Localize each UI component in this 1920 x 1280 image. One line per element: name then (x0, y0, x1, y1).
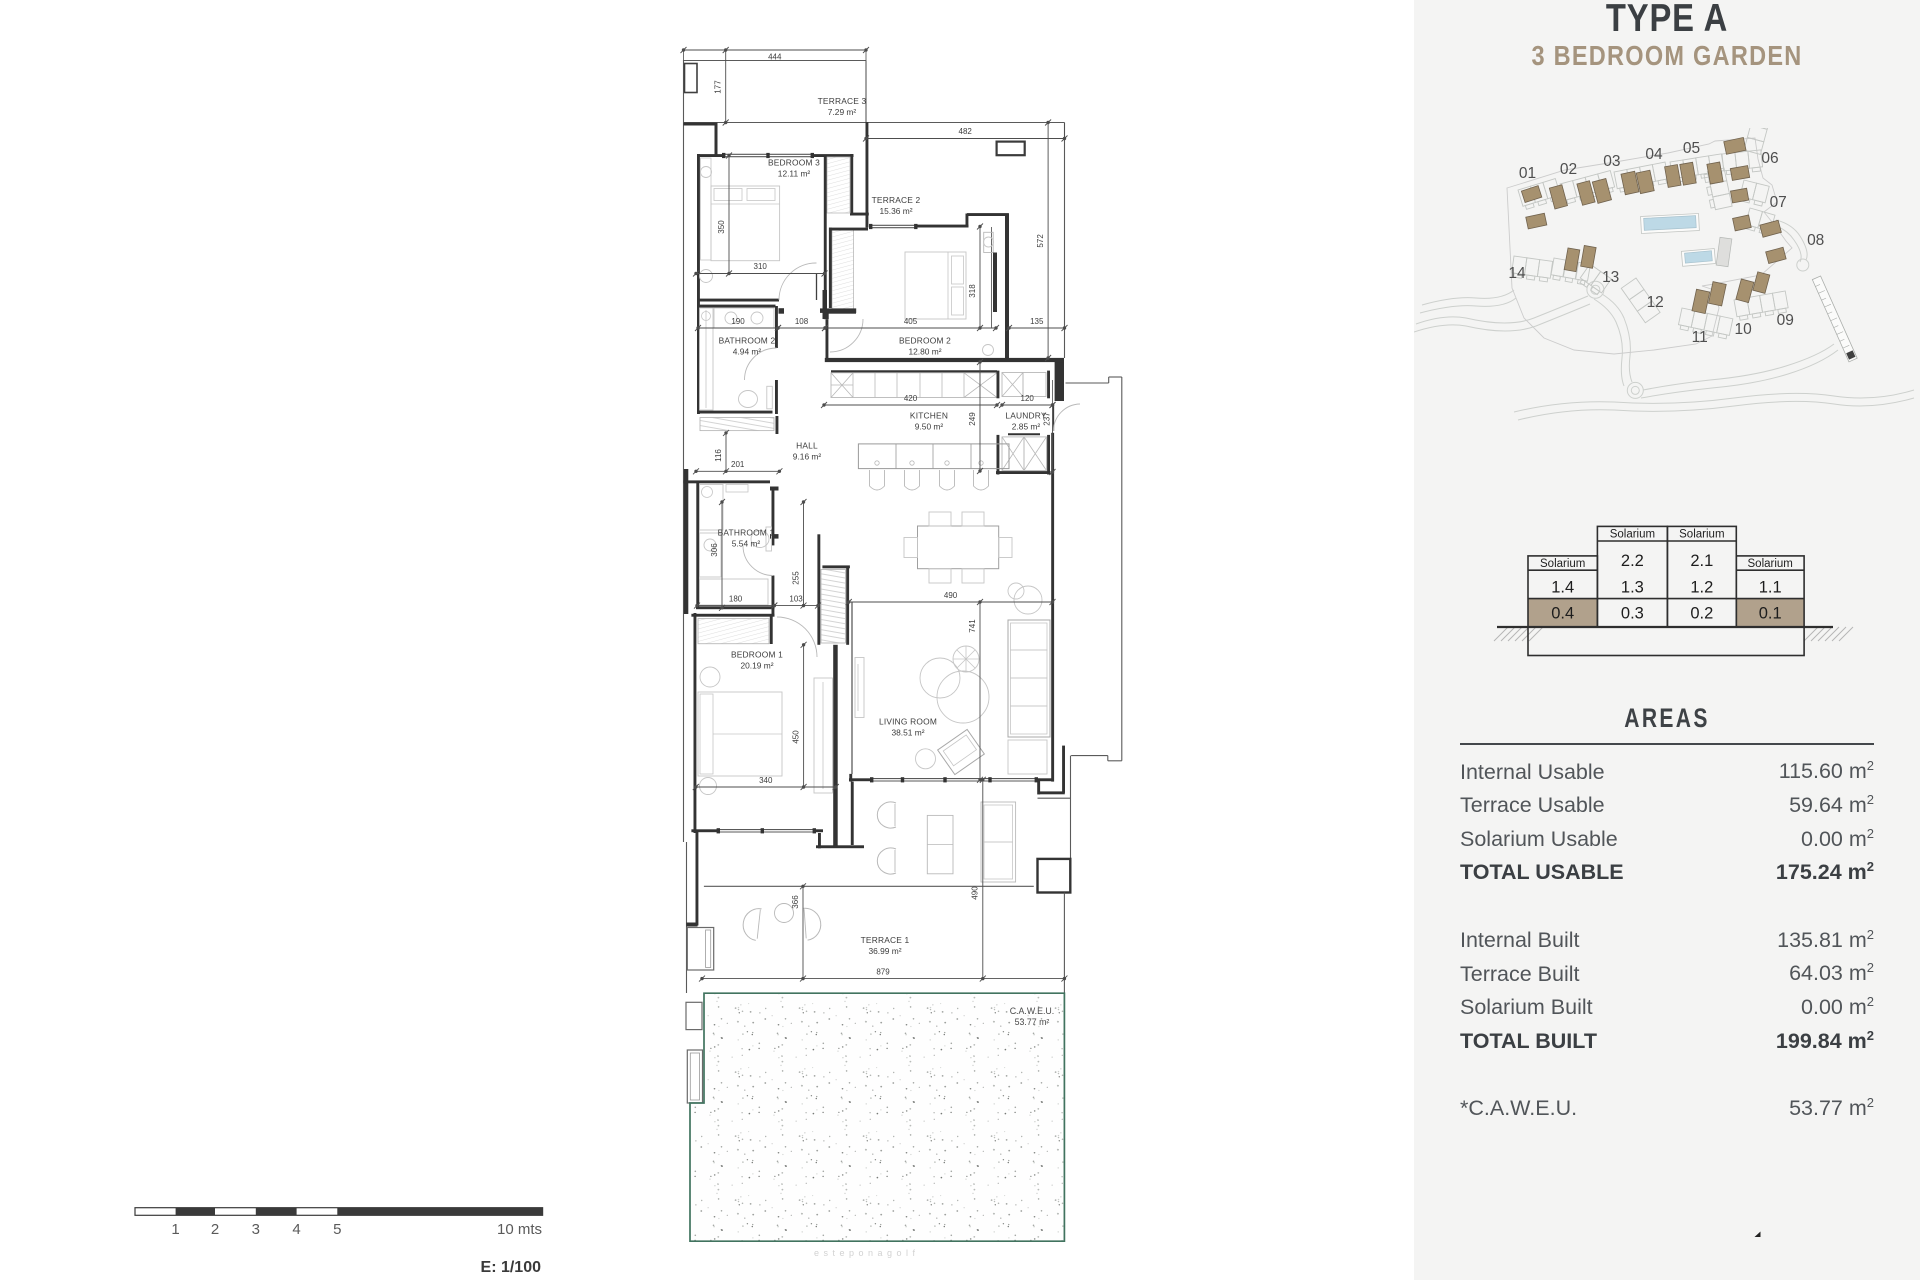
svg-text:420: 420 (904, 394, 918, 403)
svg-text:0.1: 0.1 (1759, 604, 1782, 622)
svg-text:C.A.W.E.U.: C.A.W.E.U. (1010, 1006, 1054, 1016)
svg-text:2: 2 (211, 1221, 219, 1238)
svg-text:KITCHEN: KITCHEN (910, 411, 948, 421)
svg-text:TERRACE 2: TERRACE 2 (872, 195, 921, 205)
svg-text:5.54 m²: 5.54 m² (732, 539, 761, 549)
svg-text:9.16 m²: 9.16 m² (793, 452, 822, 462)
svg-text:BATHROOM 1: BATHROOM 1 (718, 528, 775, 538)
svg-text:08: 08 (1807, 232, 1824, 249)
svg-text:11: 11 (1692, 329, 1708, 346)
svg-text:405: 405 (904, 317, 918, 326)
svg-text:20.19 m²: 20.19 m² (740, 661, 773, 671)
svg-text:09: 09 (1777, 312, 1794, 329)
svg-text:LIVING ROOM: LIVING ROOM (879, 717, 937, 727)
svg-text:13: 13 (1602, 269, 1619, 286)
svg-text:255: 255 (791, 571, 800, 585)
svg-text:450: 450 (791, 730, 800, 744)
svg-text:7.29 m²: 7.29 m² (828, 107, 857, 117)
svg-text:10 mts: 10 mts (497, 1221, 542, 1238)
svg-text:12: 12 (1647, 294, 1664, 311)
svg-text:318: 318 (968, 284, 977, 298)
svg-text:04: 04 (1645, 146, 1663, 163)
svg-text:1.2: 1.2 (1690, 578, 1713, 596)
svg-text:02: 02 (1560, 161, 1577, 178)
svg-text:HALL: HALL (796, 441, 818, 451)
svg-text:103: 103 (789, 594, 803, 603)
svg-text:249: 249 (968, 412, 977, 426)
svg-text:05: 05 (1683, 140, 1700, 157)
svg-text:1.1: 1.1 (1759, 578, 1782, 596)
svg-text:15.36 m²: 15.36 m² (879, 206, 912, 216)
svg-text:1.3: 1.3 (1621, 578, 1644, 596)
svg-text:4: 4 (292, 1221, 300, 1238)
svg-text:36.99 m²: 36.99 m² (868, 946, 901, 956)
svg-text:Solarium: Solarium (1610, 529, 1655, 541)
svg-text:Solarium: Solarium (1748, 558, 1793, 570)
svg-text:350: 350 (717, 220, 726, 234)
svg-text:14: 14 (1508, 265, 1526, 282)
svg-text:482: 482 (959, 127, 973, 136)
svg-text:06: 06 (1761, 150, 1778, 167)
svg-text:135: 135 (1030, 317, 1044, 326)
svg-text:03: 03 (1603, 153, 1620, 170)
svg-text:2.2: 2.2 (1621, 552, 1644, 570)
svg-text:572: 572 (1036, 234, 1045, 248)
svg-text:366: 366 (791, 895, 800, 909)
svg-text:LAUNDRY: LAUNDRY (1005, 411, 1046, 421)
svg-text:Solarium: Solarium (1540, 558, 1585, 570)
svg-text:4.94 m²: 4.94 m² (733, 347, 762, 357)
svg-text:0.2: 0.2 (1690, 604, 1713, 622)
svg-text:BEDROOM 1: BEDROOM 1 (731, 650, 783, 660)
svg-text:1.4: 1.4 (1551, 578, 1574, 596)
svg-text:1: 1 (171, 1221, 179, 1238)
svg-text:0.4: 0.4 (1551, 604, 1574, 622)
svg-text:306: 306 (710, 543, 719, 557)
svg-text:116: 116 (714, 449, 723, 462)
svg-text:TERRACE 1: TERRACE 1 (861, 935, 910, 945)
svg-text:12.11 m²: 12.11 m² (778, 169, 811, 179)
svg-text:Solarium: Solarium (1679, 529, 1724, 541)
svg-text:310: 310 (754, 262, 768, 271)
svg-text:177: 177 (714, 80, 723, 94)
svg-text:108: 108 (795, 317, 809, 326)
svg-text:2.85 m²: 2.85 m² (1012, 422, 1041, 432)
svg-text:0.3: 0.3 (1621, 604, 1644, 622)
svg-text:TERRACE 3: TERRACE 3 (818, 96, 867, 106)
svg-text:10: 10 (1734, 321, 1752, 338)
svg-text:BATHROOM 2: BATHROOM 2 (719, 336, 776, 346)
svg-text:190: 190 (731, 317, 745, 326)
svg-text:38.51 m²: 38.51 m² (891, 728, 924, 738)
svg-text:5: 5 (333, 1221, 341, 1238)
svg-text:340: 340 (759, 776, 773, 785)
svg-text:879: 879 (876, 967, 890, 976)
svg-text:9.50 m²: 9.50 m² (915, 422, 944, 432)
svg-text:12.80 m²: 12.80 m² (908, 347, 941, 357)
svg-text:E: 1/100: E: 1/100 (481, 1259, 542, 1276)
svg-text:3: 3 (252, 1221, 260, 1238)
svg-text:07: 07 (1770, 194, 1787, 211)
svg-text:490: 490 (944, 591, 958, 600)
svg-text:53.77 m²: 53.77 m² (1015, 1017, 1050, 1027)
svg-text:BEDROOM 3: BEDROOM 3 (768, 158, 820, 168)
svg-text:741: 741 (968, 619, 977, 633)
svg-text:180: 180 (729, 594, 743, 603)
svg-text:e s t e p o n a g o l f: e s t e p o n a g o l f (814, 1248, 916, 1258)
svg-text:01: 01 (1519, 165, 1536, 182)
svg-text:444: 444 (768, 53, 782, 62)
svg-text:2.1: 2.1 (1690, 552, 1713, 570)
svg-text:120: 120 (1021, 394, 1035, 403)
svg-text:490: 490 (971, 886, 980, 900)
svg-text:201: 201 (731, 460, 745, 469)
svg-text:BEDROOM 2: BEDROOM 2 (899, 336, 951, 346)
